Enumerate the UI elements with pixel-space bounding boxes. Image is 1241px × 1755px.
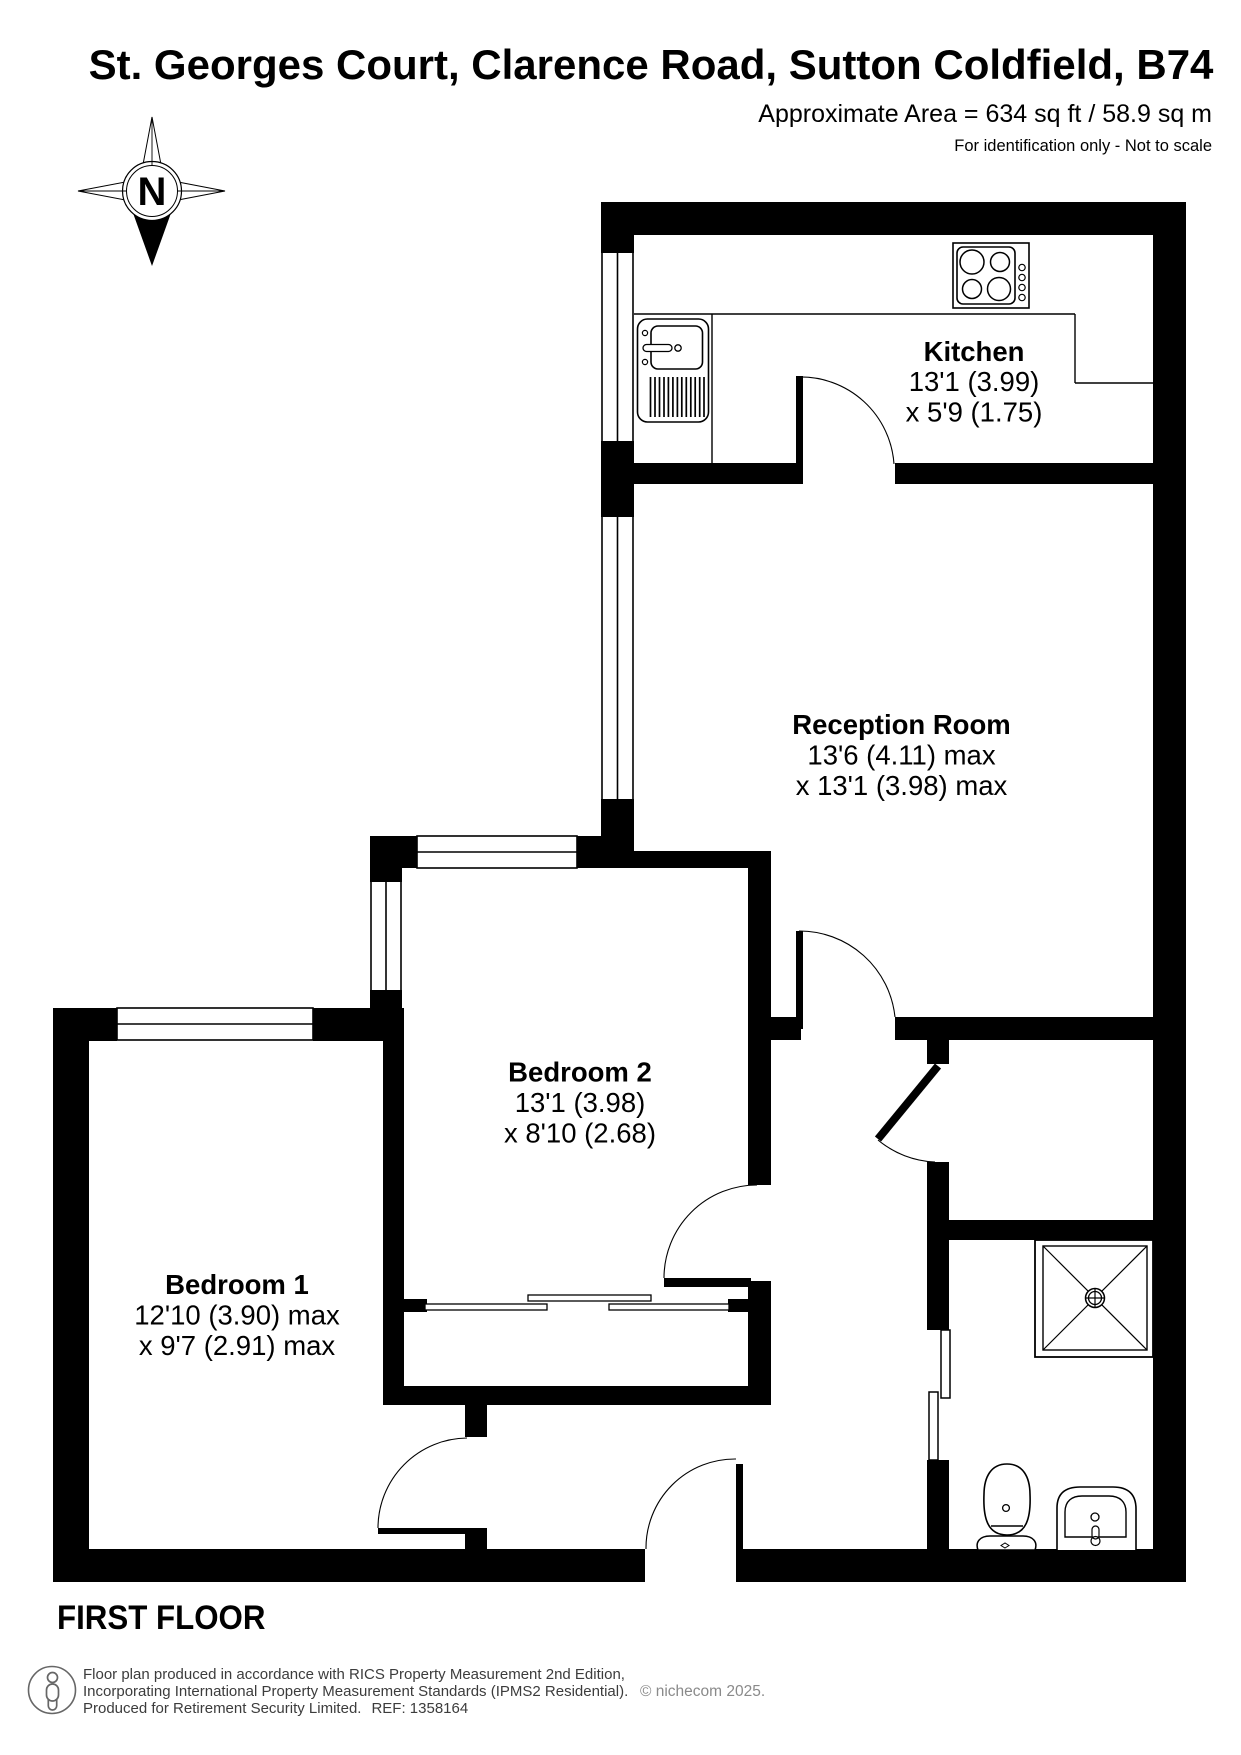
svg-text:Bedroom 1: Bedroom 1 xyxy=(165,1269,309,1300)
svg-text:Kitchen: Kitchen xyxy=(924,336,1025,367)
svg-text:Floor plan produced in accorda: Floor plan produced in accordance with R… xyxy=(83,1666,625,1683)
svg-text:x 8'10 (2.68): x 8'10 (2.68) xyxy=(504,1118,656,1149)
svg-text:N: N xyxy=(138,170,167,214)
svg-text:x 9'7 (2.91) max: x 9'7 (2.91) max xyxy=(139,1330,336,1361)
svg-text:For identification only - Not: For identification only - Not to scale xyxy=(954,137,1212,155)
svg-text:13'6 (4.11) max: 13'6 (4.11) max xyxy=(807,740,995,771)
svg-text:13'1 (3.99): 13'1 (3.99) xyxy=(909,366,1040,397)
svg-text:x 13'1 (3.98) max: x 13'1 (3.98) max xyxy=(796,770,1008,801)
svg-text:x 5'9 (1.75): x 5'9 (1.75) xyxy=(906,397,1043,428)
svg-text:12'10 (3.90) max: 12'10 (3.90) max xyxy=(134,1300,340,1331)
svg-text:Bedroom 2: Bedroom 2 xyxy=(508,1057,652,1088)
svg-text:Incorporating International Pr: Incorporating International Property Mea… xyxy=(83,1683,628,1700)
svg-text:FIRST FLOOR: FIRST FLOOR xyxy=(57,1598,265,1637)
svg-text:St. Georges Court, Clarence Ro: St. Georges Court, Clarence Road, Sutton… xyxy=(89,41,1214,88)
svg-text:© nichecom 2025.: © nichecom 2025. xyxy=(640,1683,765,1700)
svg-text:Produced for Retirement Securi: Produced for Retirement Security Limited… xyxy=(83,1700,468,1717)
svg-text:13'1 (3.98): 13'1 (3.98) xyxy=(515,1087,646,1118)
svg-text:Reception Room: Reception Room xyxy=(792,709,1010,740)
svg-text:Approximate Area = 634 sq ft /: Approximate Area = 634 sq ft / 58.9 sq m xyxy=(758,100,1212,128)
